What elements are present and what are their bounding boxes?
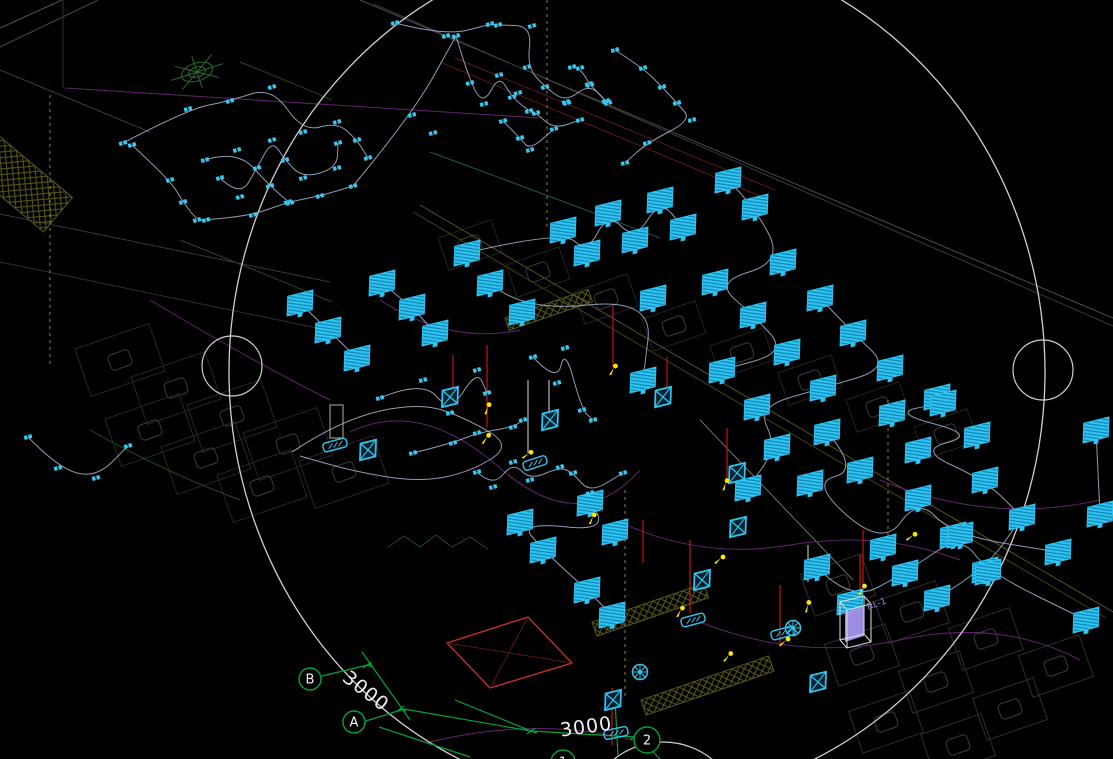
grid-line [455,700,531,731]
circuit-wire [477,467,623,488]
grid-bubble[interactable]: 1 [551,750,575,759]
panel-face [764,434,790,460]
lamp-tail [722,655,730,662]
secondary-boundary-circle [585,742,741,759]
ground-light-core [638,670,642,674]
room-outline [1019,635,1094,697]
lamp-tail [587,517,596,525]
panel-face [840,320,866,346]
dot-light[interactable] [429,130,438,136]
panel-face [369,270,395,296]
dot-light[interactable] [526,477,535,483]
light-panel[interactable] [595,200,621,230]
panel-face [602,519,628,545]
building-room [899,651,974,713]
dot-cell [380,395,384,400]
dot-cell [24,435,28,440]
circuit-wire [132,145,353,220]
light-panel[interactable] [964,422,990,452]
dot-cell [550,127,554,132]
dot-light[interactable] [233,147,242,153]
light-panel[interactable] [622,227,648,257]
dot-cell [240,194,244,199]
wall-lamp[interactable] [714,555,725,564]
dot-cell [498,22,502,27]
dot-cell [338,140,342,145]
dot-cell [565,345,569,350]
dot-light[interactable] [124,443,133,449]
dot-cell [554,126,558,131]
dot-cell [237,147,241,152]
dot-cell [333,166,337,171]
circuit-wire [395,23,606,101]
dot-cell [368,155,372,160]
panel-face [770,249,796,275]
lamp-head [528,450,533,455]
panel-face [879,400,905,426]
dot-light[interactable] [480,101,489,107]
dot-cell [688,118,692,123]
circuit-wire [503,121,554,146]
panel-face [647,187,673,213]
panel-face [877,355,903,381]
dot-cell [611,48,615,53]
panel-face [1083,417,1109,443]
dot-light[interactable] [489,484,498,490]
dot-cell [615,47,619,52]
panel-face [622,227,648,253]
dot-light[interactable] [509,459,518,465]
light-panel[interactable] [810,375,836,405]
light-panel[interactable] [369,270,395,300]
dot-cell [119,141,123,146]
dot-cell [349,184,353,189]
dot-cell [489,485,493,490]
dot-light[interactable] [333,119,342,125]
dot-cell [268,138,272,143]
road-line [0,0,62,28]
grid-bubble-label: A [350,716,359,731]
panel-face [740,302,766,328]
dot-cell [233,148,237,153]
dot-cell [593,417,597,422]
dot-cell [92,476,96,481]
panel-face [630,367,656,393]
room-furniture [107,349,133,371]
light-panel[interactable] [1045,539,1071,569]
dot-light[interactable] [553,380,562,386]
dot-cell [477,367,481,372]
junction-box-light[interactable] [694,570,710,591]
building-room [131,352,221,425]
dot-cell [419,378,423,383]
lamp-tail [480,437,488,445]
light-panel[interactable] [577,490,603,520]
building-room [973,678,1048,740]
dot-cell [376,396,380,401]
panel-face [550,217,576,243]
light-panel[interactable] [670,214,696,244]
light-panel[interactable] [1073,607,1099,637]
light-panel[interactable] [870,534,896,564]
dot-cell [272,137,276,142]
dot-cell [523,417,527,422]
panel-face [742,194,768,220]
junction-box-light[interactable] [810,672,826,693]
dot-cell [303,175,307,180]
dot-cell [413,450,417,455]
room-furniture [137,419,163,441]
building-room [217,450,307,523]
panel-face [399,294,425,320]
dot-light[interactable] [509,424,518,430]
linear-light[interactable] [680,613,706,628]
lamp-head [861,583,867,589]
light-panel[interactable] [807,285,833,315]
lamp-tail [482,407,491,416]
dot-light[interactable] [299,175,308,181]
dot-cell [299,176,303,181]
dot-cell [530,147,534,152]
panel-face [1073,607,1099,633]
curb-line [440,62,760,196]
dot-cell [128,143,132,148]
room-furniture [593,288,619,310]
dot-cell [316,194,320,199]
path-line [620,522,960,560]
room-outline [899,651,974,713]
dot-light[interactable] [449,440,458,446]
light-panel[interactable] [507,509,533,539]
lamp-tail [802,604,811,613]
room-furniture [193,447,219,469]
room-furniture [873,711,899,733]
light-panel[interactable] [905,485,931,515]
room-furniture [249,475,275,497]
dot-cell [528,24,532,29]
panel-face [774,339,800,365]
dot-light[interactable] [486,21,495,27]
dot-cell [337,165,341,170]
light-panel[interactable] [574,240,600,270]
wall-lamp[interactable] [722,651,735,662]
dot-light[interactable] [473,430,482,436]
dot-cell [357,137,361,142]
light-panel[interactable] [702,269,728,299]
dot-cell [473,368,477,373]
light-panel[interactable] [905,437,931,467]
match-marker-circle [1013,340,1073,400]
dot-cell [573,470,577,475]
red-diagonal [447,643,572,663]
light-panel[interactable] [640,285,666,315]
light-panel[interactable] [972,467,998,497]
trellis-band [641,656,774,715]
dot-light[interactable] [268,137,277,143]
dot-light[interactable] [92,475,101,481]
wiring-layer [28,23,1100,620]
dot-cell [518,90,522,95]
room-furniture [933,423,959,445]
dot-light[interactable] [569,470,578,476]
room-furniture [163,377,189,399]
lamp-tail [720,483,729,492]
dimension-text[interactable]: 3000 [559,713,614,742]
building-room [949,608,1024,670]
circuit-wire [380,377,487,403]
building-room [187,380,277,453]
lamp-head [912,532,917,537]
dot-cell [508,95,512,100]
dot-cell [578,408,582,413]
match-marker-circle [202,336,262,396]
junction-box-light[interactable] [360,440,376,461]
dot-light[interactable] [561,345,570,351]
panel-face [964,422,990,448]
light-panel[interactable] [422,320,448,350]
dot-cell [320,193,324,198]
dot-cell [553,381,557,386]
light-panel[interactable] [715,167,741,197]
dot-light[interactable] [408,112,417,118]
room-furniture [1043,655,1069,677]
light-panel[interactable] [924,585,950,615]
dot-light[interactable] [523,64,532,70]
dot-cell [303,129,307,134]
dot-cell [526,148,530,153]
path-line [150,300,330,400]
panel-face [702,269,728,295]
light-panel[interactable] [764,434,790,464]
road-line [0,0,98,47]
dot-light[interactable] [473,367,482,373]
room-furniture [331,461,357,483]
grid-bubble[interactable]: A [343,711,365,733]
light-panel[interactable] [797,470,823,500]
dot-cell [643,65,647,70]
dot-cell [433,130,437,135]
panel-face [905,485,931,511]
dot-cell [509,460,513,465]
panel-face [814,419,840,445]
light-panel[interactable] [1087,501,1113,531]
light-panel[interactable] [530,537,556,567]
panel-face [1087,501,1113,527]
circuit-wire [123,92,368,158]
light-panel[interactable] [709,357,735,387]
circuit-wire [413,420,523,453]
site-lighting-plan-drawing: BA2130003000RL-1 [0,0,1113,759]
dot-cell [560,464,564,469]
dot-cell [557,380,561,385]
dot-cell [484,101,488,106]
road-line [360,0,1113,318]
post-frame [330,405,343,438]
light-panel[interactable] [1083,417,1109,447]
dot-cell [561,346,565,351]
linear-light[interactable] [322,438,348,453]
room-outline [75,324,165,397]
lamp-head [728,651,734,657]
light-panel[interactable] [847,457,873,487]
ground-light[interactable] [786,621,801,636]
dot-cell [391,21,395,26]
grid-bubble[interactable]: B [299,668,321,690]
panel-face [870,534,896,560]
room-outline [131,352,221,425]
dot-cell [580,65,584,70]
dot-cell [412,112,416,117]
dot-light[interactable] [333,165,342,171]
dot-cell [216,176,220,181]
dot-cell [487,390,491,395]
planting-line [388,535,488,549]
light-panel[interactable] [647,187,673,217]
dot-light[interactable] [236,194,245,200]
wall-lamp[interactable] [905,531,917,541]
dot-cell [334,141,338,146]
light-panel[interactable] [840,320,866,350]
room-furniture [275,433,301,455]
dot-cell [202,218,206,223]
circuit-wire [353,36,456,186]
dot-cell [184,107,188,112]
dot-cell [513,459,517,464]
dot-cell [530,477,534,482]
light-panel[interactable] [892,560,918,590]
dot-cell [205,157,209,162]
dot-cell [621,161,625,166]
dot-cell [423,377,427,382]
grid-bubble[interactable]: 2 [634,727,660,753]
dot-light[interactable] [419,377,428,383]
light-panel[interactable] [742,194,768,224]
ground-light[interactable] [633,665,648,680]
room-furniture [661,315,687,337]
dot-light[interactable] [54,465,63,471]
room-outline [849,691,924,753]
junction-box-light[interactable] [542,410,558,431]
wall-lamp[interactable] [800,599,815,613]
dot-light[interactable] [688,117,697,123]
grid-bubble-label: 2 [643,734,651,749]
building-room [849,691,924,753]
junction-box-light[interactable] [730,517,746,538]
junction-box-light[interactable] [729,463,745,484]
cad-viewport: BA2130003000RL-1 [0,0,1113,759]
light-panel[interactable] [550,217,576,247]
dot-cell [197,217,201,222]
circuit-label[interactable]: RL-1 [866,597,888,613]
pipe-line [430,152,660,238]
dot-cell [516,136,520,141]
wall-lamp[interactable] [479,432,492,444]
panel-face [892,560,918,586]
dot-cell [480,102,484,107]
building-room [921,714,996,759]
light-panel[interactable] [287,290,313,320]
dot-cell [236,195,240,200]
room-furniture [899,601,925,623]
dot-cell [495,73,499,78]
building-room [75,324,165,397]
dot-light[interactable] [268,84,277,90]
dot-cell [96,475,100,480]
linear-light[interactable] [522,455,548,471]
light-panel[interactable] [774,339,800,369]
dot-cell [206,217,210,222]
dot-cell [253,166,257,171]
lamp-tail [905,534,912,541]
annotation-layer: BA2130003000RL-1 [299,597,888,759]
circuit-wire [615,50,686,163]
light-panel[interactable] [399,294,425,324]
dot-cell [493,484,497,489]
road-line [0,70,150,132]
dot-cell [408,113,412,118]
panel-face [640,285,666,311]
dot-cell [128,443,132,448]
light-panel[interactable] [744,394,770,424]
light-panel[interactable] [877,355,903,385]
grid-bubble-label: 1 [559,756,567,759]
dot-cell [353,138,357,143]
building-room [243,408,333,481]
dot-cell [54,466,58,471]
room-furniture [945,734,971,756]
light-panel[interactable] [630,367,656,397]
dot-light[interactable] [528,23,537,29]
junction-box-light[interactable] [605,690,621,711]
room-furniture [997,698,1023,720]
dot-cell [623,470,627,475]
junction-box-light[interactable] [655,387,671,408]
light-panel[interactable] [477,270,503,300]
dot-cell [337,119,341,124]
lamp-tail [521,452,528,459]
dot-light[interactable] [526,147,535,153]
dot-cell [486,22,490,27]
panel-face [422,320,448,346]
dot-cell [494,23,498,28]
grid-bubble-label: B [306,673,315,688]
dot-cell [409,451,413,456]
dot-cell [353,183,357,188]
light-panel[interactable] [879,400,905,430]
lamp-tail [674,610,683,618]
hatch-band-layer [0,130,774,715]
room-outline [973,678,1048,740]
room-outline [187,380,277,453]
room-outline [217,450,307,523]
dot-cell [466,81,470,86]
tree-symbol [166,47,228,96]
light-panel[interactable] [602,519,628,549]
dot-light[interactable] [639,65,648,71]
panel-face [905,437,931,463]
room-outline [243,408,333,481]
light-panel[interactable] [770,249,796,279]
light-panel[interactable] [814,419,840,449]
path-line [65,88,540,118]
dimension-text[interactable]: 3000 [338,666,393,716]
grid-line [404,709,531,731]
panel-face [924,585,950,611]
panel-face [530,537,556,563]
junction-box-light[interactable] [442,387,458,408]
dot-cell [201,158,205,163]
dot-cell [545,84,549,89]
